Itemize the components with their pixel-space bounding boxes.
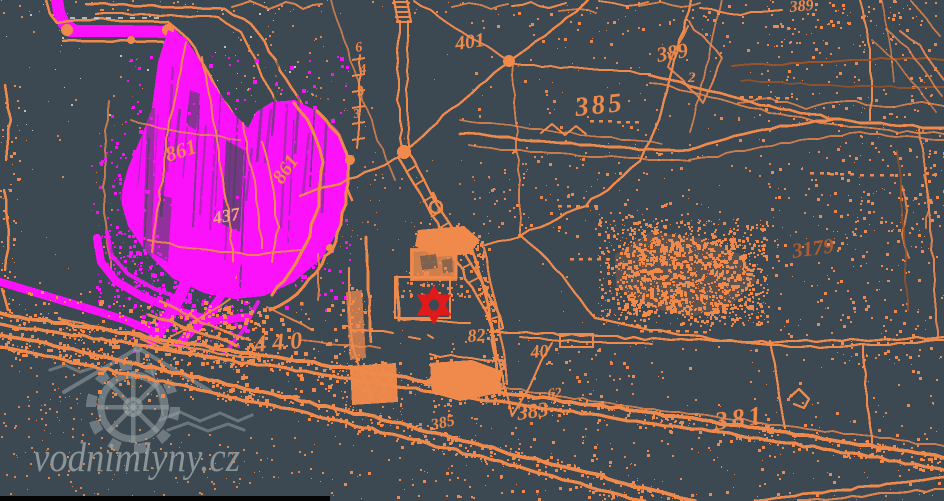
svg-text:82: 82	[467, 324, 487, 345]
svg-text:40: 40	[529, 340, 550, 362]
svg-text:389: 389	[788, 0, 814, 16]
svg-text:vodnimlyny.cz: vodnimlyny.cz	[33, 434, 240, 480]
svg-text:62: 62	[547, 386, 562, 402]
svg-text:2: 2	[687, 70, 696, 86]
svg-text:401: 401	[453, 29, 487, 55]
svg-text:385: 385	[572, 87, 625, 122]
svg-text:383: 383	[514, 397, 550, 425]
